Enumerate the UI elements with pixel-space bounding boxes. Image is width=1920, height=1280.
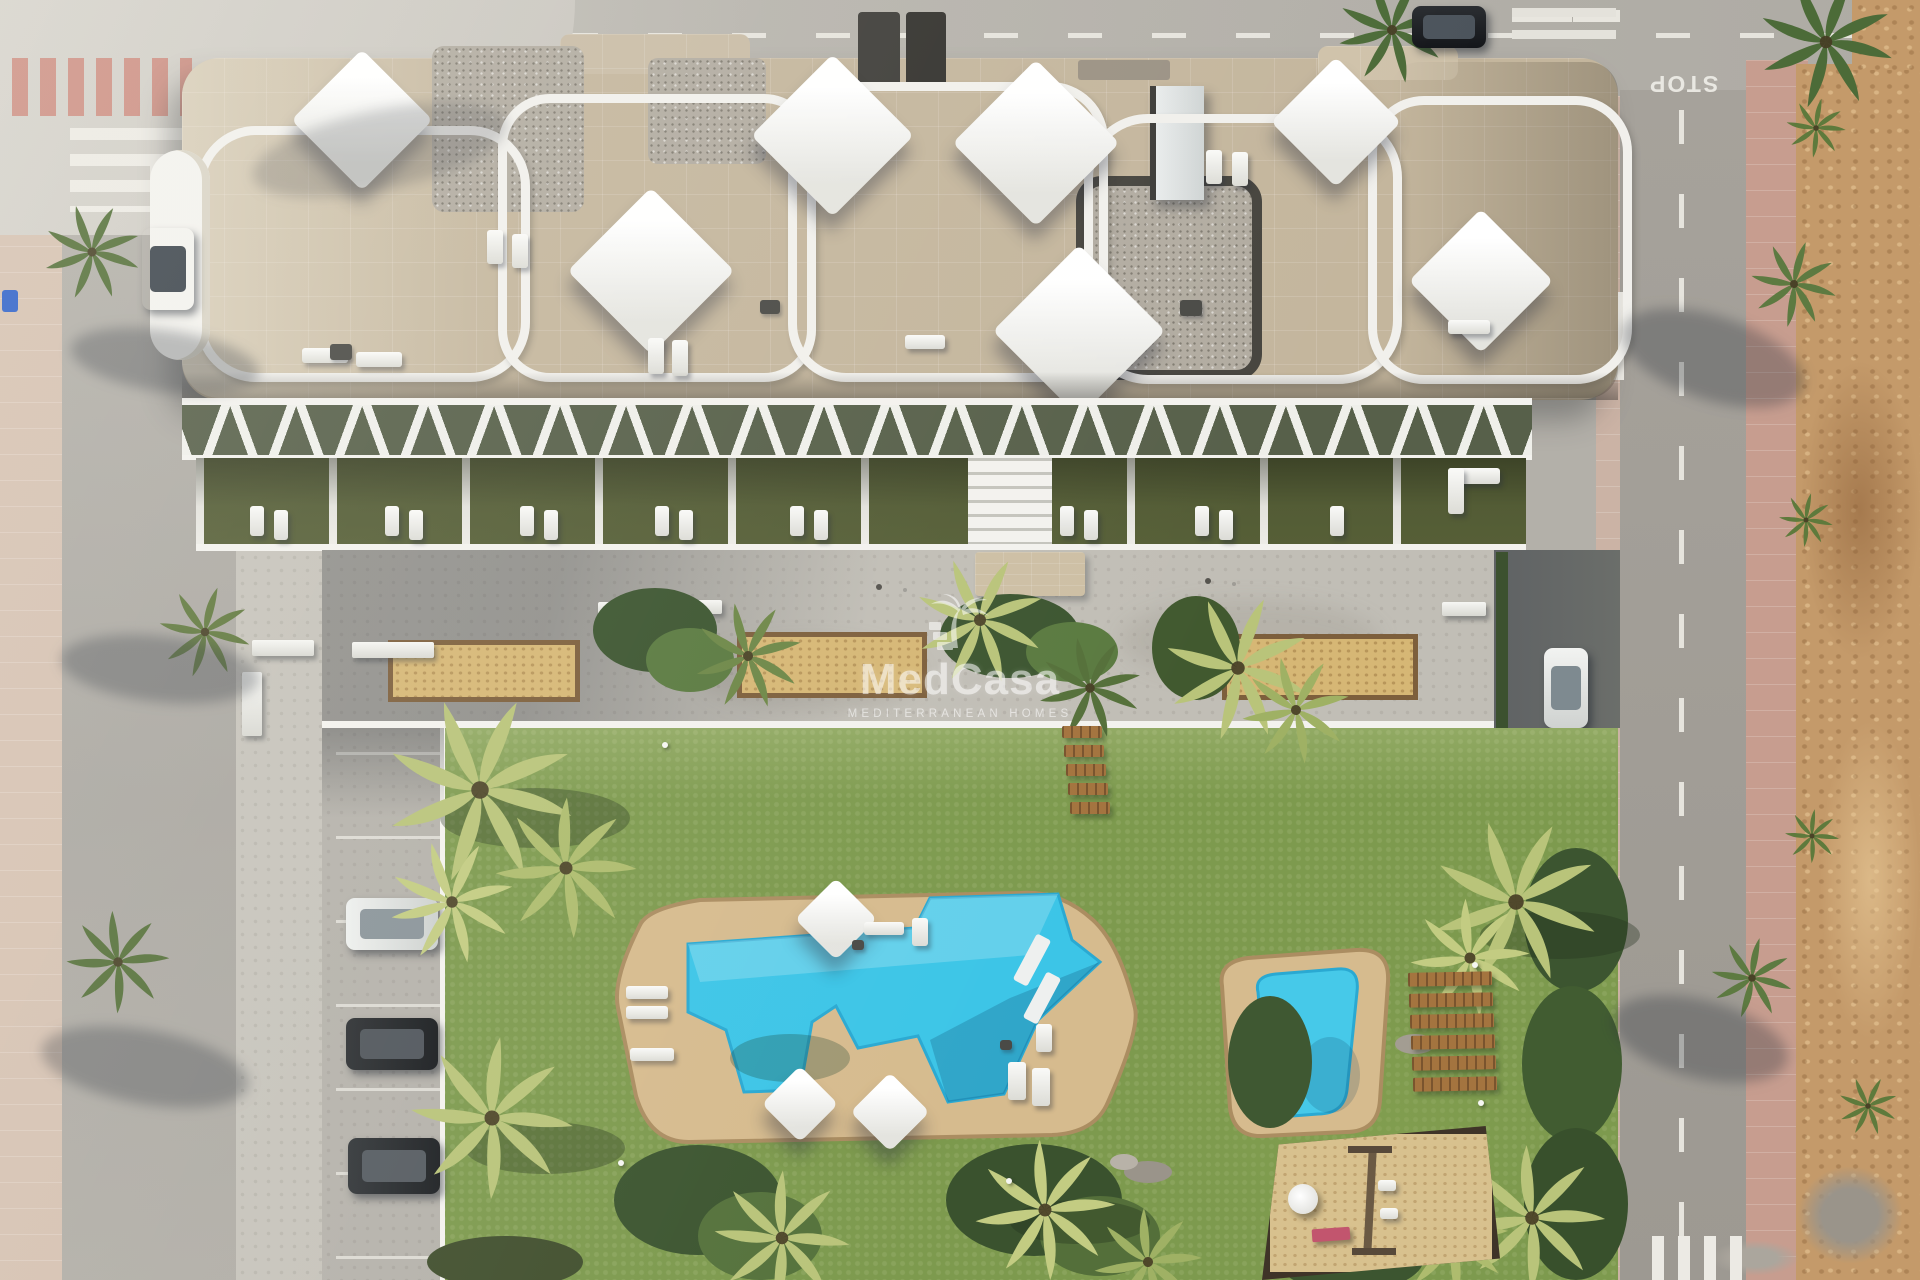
garden-step xyxy=(1070,802,1110,814)
watermark-brand: MedCasa xyxy=(820,655,1100,705)
lawn-bench xyxy=(1413,1076,1497,1091)
path-light xyxy=(618,1160,624,1166)
car-windshield xyxy=(150,246,186,292)
palm-tree-logo xyxy=(923,592,997,650)
path-light xyxy=(1478,1100,1484,1106)
pool-lounger xyxy=(864,922,904,935)
pool-lounger xyxy=(626,1006,668,1019)
garden-step xyxy=(1064,745,1104,757)
pool-lounger xyxy=(912,918,928,946)
pool-lounger xyxy=(626,986,668,999)
street-tree xyxy=(1747,0,1905,121)
lawn-bench xyxy=(1410,1013,1494,1028)
path-light xyxy=(1472,962,1478,968)
parked-car-left-road xyxy=(142,228,194,310)
blue-recycle-bin xyxy=(2,290,18,312)
swing-top-bar xyxy=(1348,1146,1392,1153)
swing-seat xyxy=(1378,1180,1396,1191)
dirt-weeds xyxy=(1774,98,1909,1147)
play-bench-pink xyxy=(1312,1227,1351,1243)
pool-lounger xyxy=(1008,1062,1026,1100)
pool-lounger xyxy=(1032,1068,1050,1106)
pool-table xyxy=(1000,1040,1012,1050)
street-tree xyxy=(1747,237,1841,331)
play-parasol xyxy=(1288,1184,1318,1214)
garden-step xyxy=(1066,764,1106,776)
watermark-tagline: MEDITERRANEAN HOMES xyxy=(820,708,1100,720)
car-windshield xyxy=(1423,15,1475,39)
garden-step xyxy=(1068,783,1108,795)
pool-lounger xyxy=(630,1048,674,1061)
garden-step xyxy=(1062,726,1102,738)
rock xyxy=(1110,1154,1138,1170)
path-light xyxy=(1006,1178,1012,1184)
lawn-bench xyxy=(1411,1034,1495,1049)
lawn-bench xyxy=(1412,1055,1496,1070)
pool-lounger xyxy=(1036,1024,1052,1052)
path-light xyxy=(662,742,668,748)
swing-bottom-bar xyxy=(1352,1248,1396,1255)
lawn-bench xyxy=(1408,971,1492,986)
aerial-residential-render: STOP xyxy=(0,0,1920,1280)
street-tree xyxy=(32,192,152,312)
black-car-top-road xyxy=(1412,6,1486,48)
watermark: MedCasa MEDITERRANEAN HOMES xyxy=(820,592,1100,720)
pool-table xyxy=(852,940,864,950)
street-tree xyxy=(58,902,178,1022)
playground xyxy=(1262,1126,1500,1280)
swing-seat xyxy=(1380,1208,1398,1219)
lawn-bench xyxy=(1409,992,1493,1007)
palm-tree xyxy=(377,1003,607,1233)
